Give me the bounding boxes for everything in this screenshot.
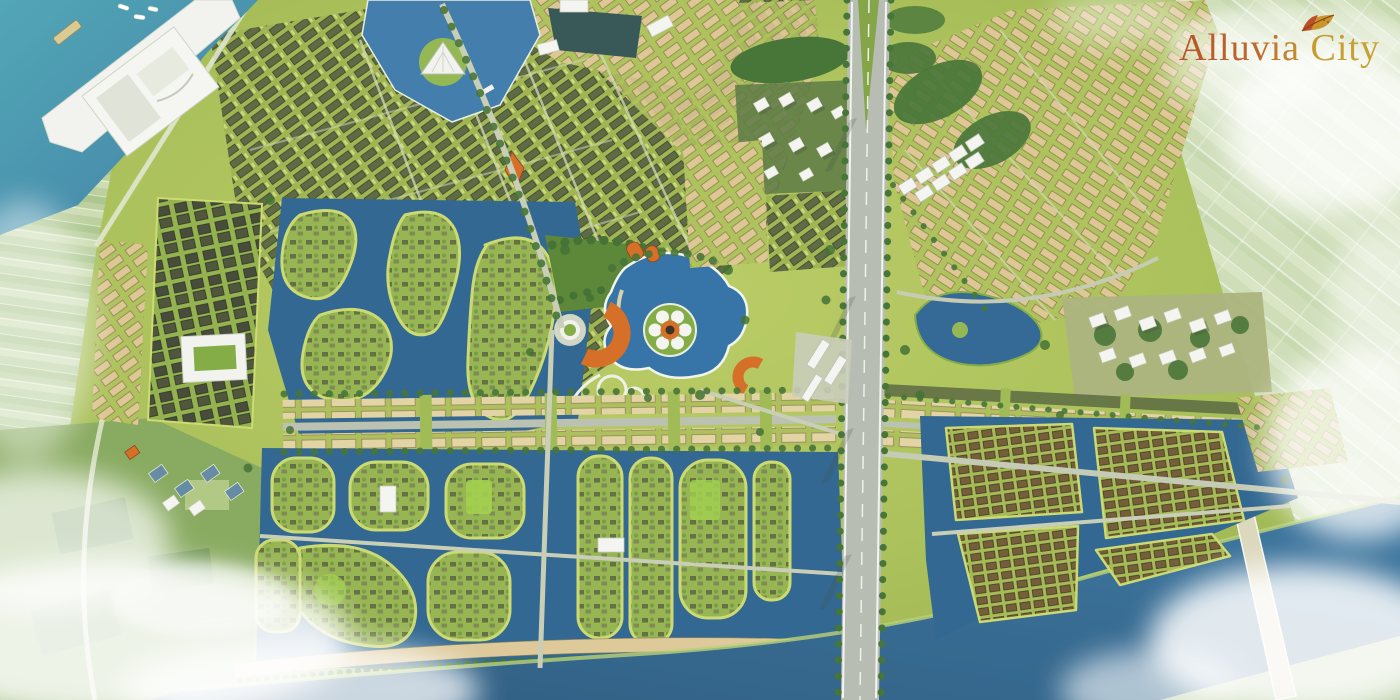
masterplan-render: Alluvia City (0, 0, 1400, 700)
masterplan-canvas (0, 0, 1400, 700)
